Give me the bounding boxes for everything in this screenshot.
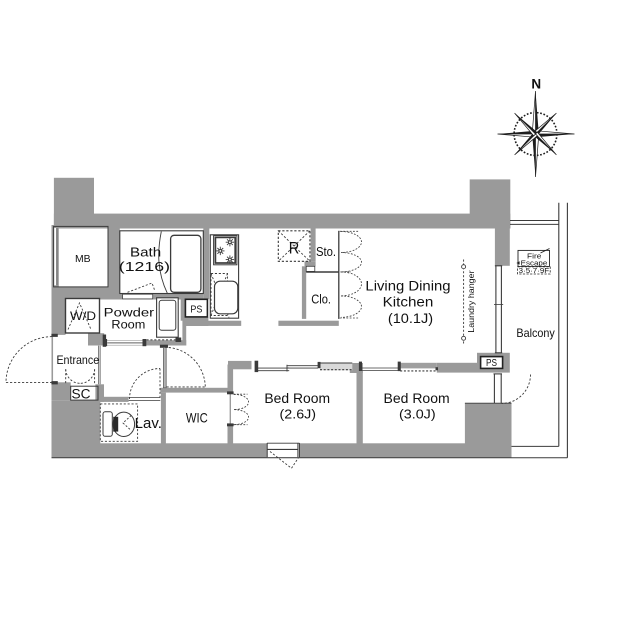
svg-text:Balcony: Balcony (516, 326, 554, 340)
svg-text:PS: PS (190, 303, 202, 315)
svg-text:(1216): (1216) (119, 260, 170, 274)
svg-text:MB: MB (75, 254, 91, 265)
svg-text:Bed Room: Bed Room (264, 390, 330, 406)
svg-text:(2.6J): (2.6J) (280, 407, 317, 422)
svg-text:Room: Room (111, 318, 145, 332)
svg-text:(10.1J): (10.1J) (388, 311, 433, 326)
svg-text:Living Dining: Living Dining (365, 279, 450, 294)
svg-text:Kitchen: Kitchen (383, 294, 434, 309)
svg-text:Bed Room: Bed Room (384, 390, 450, 406)
svg-text:Lav.: Lav. (135, 416, 162, 432)
svg-text:Escape: Escape (521, 260, 548, 267)
svg-text:Fire: Fire (527, 253, 541, 260)
svg-text:R: R (289, 238, 300, 257)
svg-text:3·5·7·9F: 3·5·7·9F (519, 268, 549, 275)
svg-text:Bath: Bath (130, 245, 161, 259)
svg-text:(3.0J): (3.0J) (399, 407, 436, 422)
svg-text:Sto.: Sto. (316, 245, 336, 259)
svg-text:Laundry hanger: Laundry hanger (467, 270, 476, 333)
svg-text:PS: PS (486, 358, 497, 369)
svg-text:SC: SC (72, 387, 91, 402)
svg-text:WIC: WIC (186, 411, 208, 426)
svg-text:N: N (531, 77, 541, 92)
svg-text:Clo.: Clo. (311, 292, 331, 306)
svg-text:Entrance: Entrance (56, 353, 99, 367)
svg-text:W/D: W/D (70, 310, 96, 323)
